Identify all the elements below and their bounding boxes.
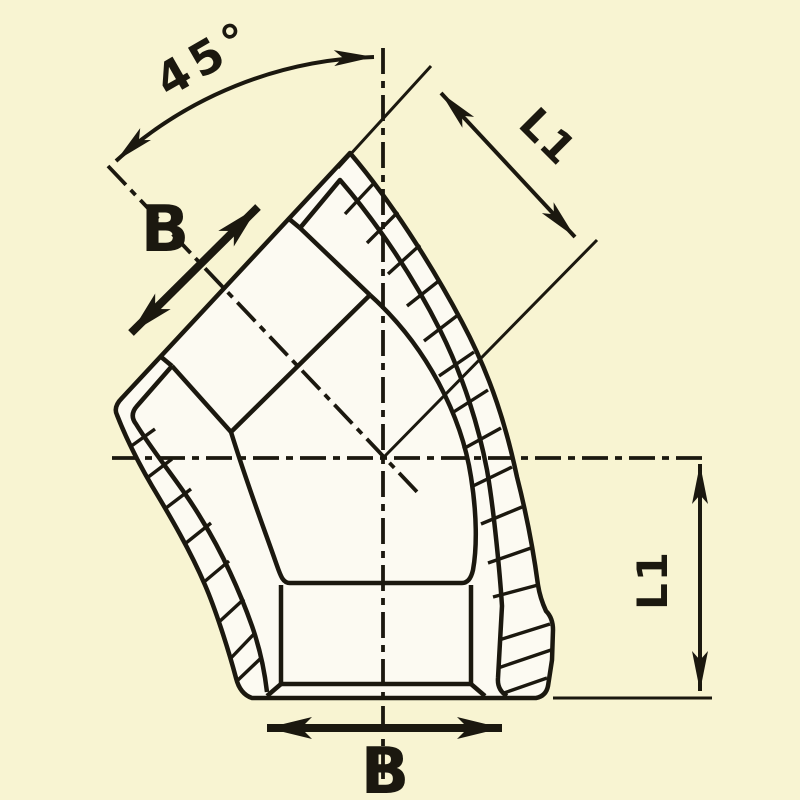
drawing-canvas: 45° B B L1 L1 — [0, 0, 800, 800]
dim-l1-vertical-label: L1 — [628, 550, 677, 610]
elbow-technical-drawing: 45° B B L1 L1 — [0, 0, 800, 800]
dim-l1-diagonal-label: L1 — [510, 98, 587, 175]
dim-b-top-label: B — [141, 193, 190, 267]
angle-45-label: 45° — [146, 9, 264, 108]
dim-b-bottom-label: B — [361, 735, 410, 800]
